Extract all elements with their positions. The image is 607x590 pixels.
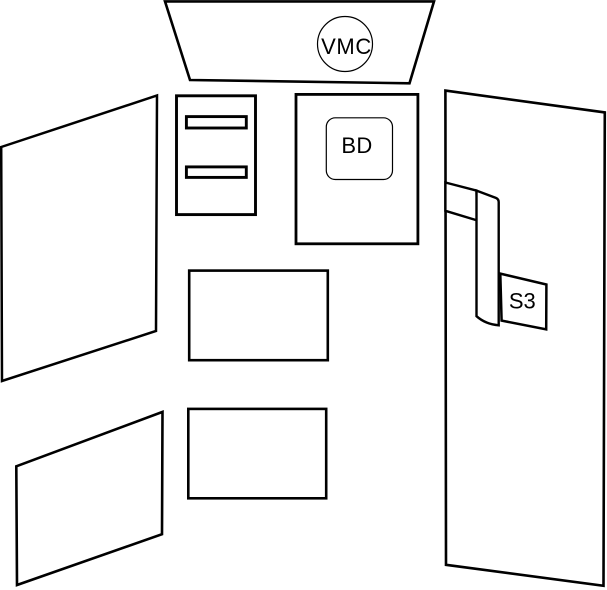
svg-text:S3: S3	[509, 288, 536, 313]
svg-text:BD: BD	[341, 133, 372, 158]
svg-text:VMC: VMC	[321, 34, 372, 59]
